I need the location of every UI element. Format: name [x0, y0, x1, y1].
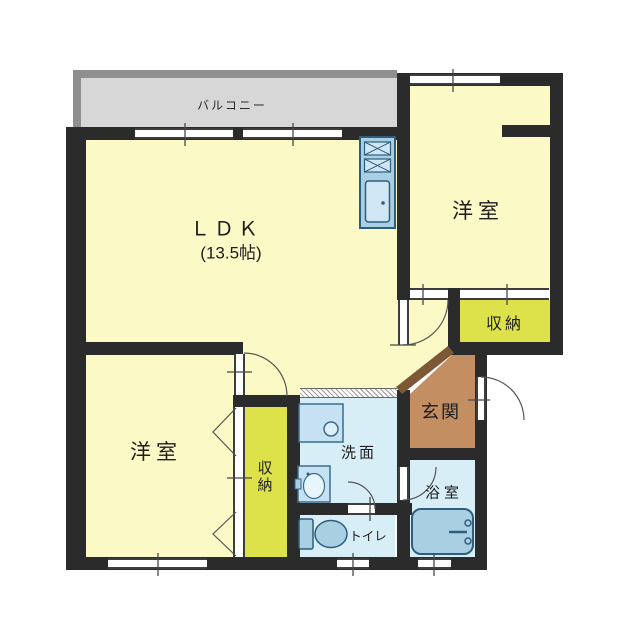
closetne-bottom-wall: [448, 342, 563, 355]
balcony-outer-wall-left: [73, 70, 81, 127]
entrance-door-leaf: [476, 377, 486, 420]
bedroomne-window: [410, 74, 500, 85]
ldk-size-label: (13.5帖): [200, 239, 261, 264]
ldk-window-left: [135, 128, 233, 139]
bath-door-leaf: [398, 467, 409, 500]
wall-stub-ne: [502, 125, 550, 137]
floorplan: バルコニー ＬＤＫ (13.5帖) 洋室 収納 玄関 洋室 収納 洗面 トイレ …: [0, 0, 639, 640]
outer-wall-right: [550, 73, 563, 355]
ldk-window-right: [243, 128, 342, 139]
entrance-door-arc: [481, 377, 524, 420]
closet-ne-label: 収納: [486, 310, 524, 334]
washroom-label: 洗面: [341, 442, 377, 463]
entrance-bottom-wall: [397, 448, 487, 460]
bedroomsw-door-leaf: [234, 354, 245, 395]
toilet-window: [337, 558, 369, 569]
hall-door-leaf: [398, 300, 409, 345]
bath-floor: [410, 460, 475, 557]
entrance-step-diagonal: [396, 346, 454, 394]
balcony-outer-wall-top: [73, 70, 397, 78]
bath-window: [418, 558, 451, 569]
toilet-door-leaf: [348, 503, 375, 515]
bedroomsw-top-wall: [66, 342, 243, 355]
balcony-label: バルコニー: [197, 97, 267, 114]
bedroom-ne-floor: [410, 86, 550, 288]
hall-door-arc: [403, 300, 448, 345]
entrance-left-wall: [397, 390, 410, 448]
ldk-top-wall: [66, 127, 410, 140]
bedroomsw-window: [108, 558, 207, 569]
entrance-label: 玄関: [421, 398, 461, 424]
washroom-toilet-wall-left: [287, 503, 348, 515]
ldk-bedroomne-wall: [397, 86, 410, 300]
closet-sw-label: 収納: [254, 460, 275, 494]
closetsw-bifold-track: [233, 407, 245, 557]
bedroomne-hall-sliding-door: [410, 288, 448, 300]
bedroom-ne-label: 洋室: [452, 195, 504, 225]
closetne-sliding-door: [460, 288, 549, 300]
bath-label: 浴室: [425, 482, 463, 503]
ldk-label: ＬＤＫ: [190, 213, 262, 242]
toilet-label: トイレ: [349, 526, 387, 545]
washroom-opening-hatch: [300, 388, 397, 398]
closetsw-washroom-wall: [287, 395, 300, 570]
bedroom-sw-label: 洋室: [130, 436, 182, 466]
